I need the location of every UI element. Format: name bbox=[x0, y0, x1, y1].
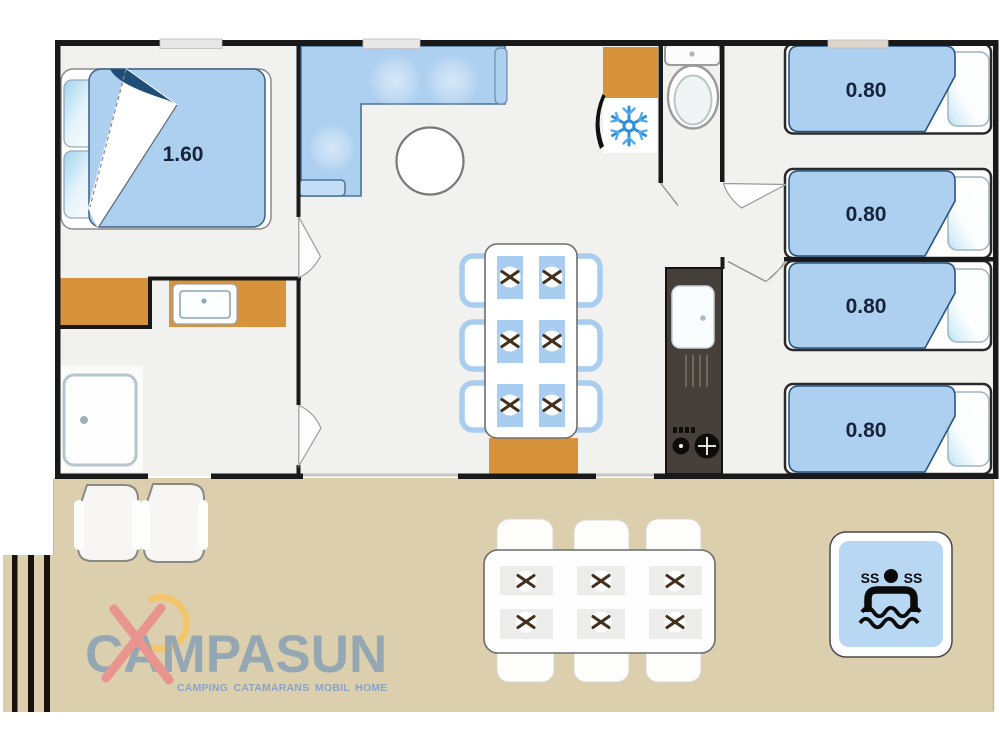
svg-text:CAMPING CATAMARANS MOBIL HOM: CAMPING CATAMARANS MOBIL HOME bbox=[177, 682, 387, 694]
svg-text:0.80: 0.80 bbox=[846, 419, 887, 442]
svg-text:0.80: 0.80 bbox=[846, 203, 887, 226]
svg-text:1.60: 1.60 bbox=[163, 143, 204, 166]
svg-text:0.80: 0.80 bbox=[846, 295, 887, 318]
svg-text:SS: SS bbox=[861, 570, 880, 586]
svg-text:SS: SS bbox=[904, 570, 923, 586]
svg-text:0.80: 0.80 bbox=[846, 79, 887, 102]
